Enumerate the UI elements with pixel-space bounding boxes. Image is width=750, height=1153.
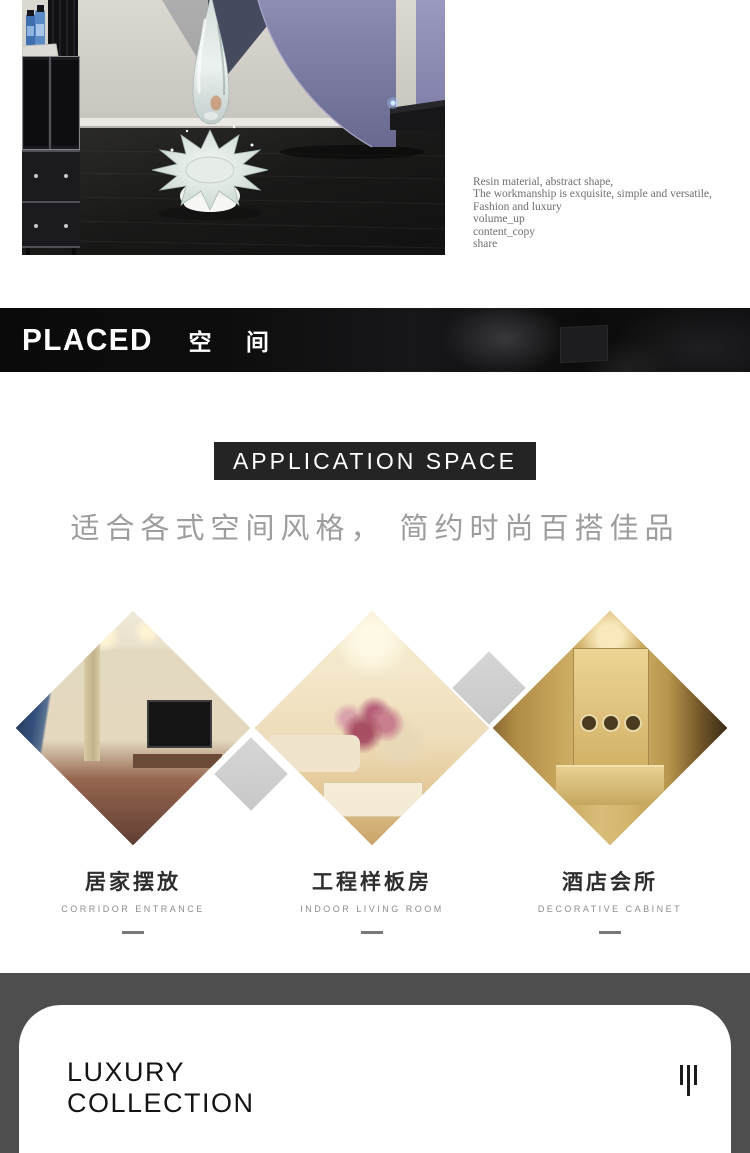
tv-stand-detail [133, 754, 222, 768]
shelf-unit-shape [22, 0, 80, 255]
banner-door-silhouette [560, 325, 608, 364]
product-detail-page: Resin material, abstract shape, The work… [0, 0, 750, 1153]
showroom-living-room-photo [255, 611, 489, 845]
copy-action-text[interactable]: content_copy [473, 226, 738, 238]
label-dash [599, 931, 621, 934]
footer-title-line2: COLLECTION [67, 1088, 255, 1119]
tv-detail [147, 700, 212, 748]
hero-description-line: Resin material, abstract shape, [473, 176, 738, 188]
share-action-text[interactable]: share [473, 238, 738, 250]
hero-description-line: Fashion and luxury [473, 201, 738, 213]
hero-product-photo [22, 0, 445, 255]
lobby-wall-panel-detail [573, 648, 650, 767]
coffee-table-detail [323, 782, 423, 817]
application-space-header: APPLICATION SPACE [214, 442, 536, 480]
wall-plate-detail [624, 714, 642, 732]
luxury-collection-title: LUXURY COLLECTION [67, 1057, 255, 1119]
space-label-cn: 酒店会所 [510, 866, 710, 896]
tts-action-text[interactable]: volume_up [473, 213, 738, 225]
placed-title-cn: 空 间 [188, 323, 282, 357]
footer-dark-band: LUXURY COLLECTION [0, 973, 750, 1153]
wall-plate-detail [580, 714, 598, 732]
curtain-detail [84, 639, 100, 761]
space-label-hotel: 酒店会所 DECORATIVE CABINET [510, 866, 710, 934]
hero-description: Resin material, abstract shape, The work… [473, 176, 738, 250]
space-label-en: DECORATIVE CABINET [510, 904, 710, 914]
wall-plate-detail [602, 714, 620, 732]
space-photo-hotel-diamond [493, 611, 728, 846]
placed-section-banner: PLACED 空 间 [0, 308, 750, 372]
reception-desk-detail [556, 765, 664, 804]
home-living-room-photo [16, 611, 250, 845]
luxury-collection-card: LUXURY COLLECTION [19, 1005, 731, 1153]
label-dash [122, 931, 144, 934]
hero-description-line: The workmanship is exquisite, simple and… [473, 188, 738, 200]
space-photo-home-diamond [16, 611, 251, 846]
space-label-showroom: 工程样板房 INDOOR LIVING ROOM [272, 866, 472, 934]
space-label-en: CORRIDOR ENTRANCE [33, 904, 233, 914]
space-label-home: 居家摆放 CORRIDOR ENTRANCE [33, 866, 233, 934]
label-dash [361, 931, 383, 934]
space-label-cn: 居家摆放 [33, 866, 233, 896]
hotel-lobby-photo [493, 611, 727, 845]
three-vertical-bars-icon [680, 1065, 697, 1096]
placed-title-en: PLACED [22, 322, 153, 358]
application-space-subtitle: 适合各式空间风格， 简约时尚百搭佳品 [0, 505, 750, 547]
space-label-cn: 工程样板房 [272, 866, 472, 896]
space-photo-showroom-diamond [255, 611, 490, 846]
footer-title-line1: LUXURY [67, 1057, 255, 1088]
hero-photo-illustration [22, 0, 445, 255]
space-label-en: INDOOR LIVING ROOM [272, 904, 472, 914]
